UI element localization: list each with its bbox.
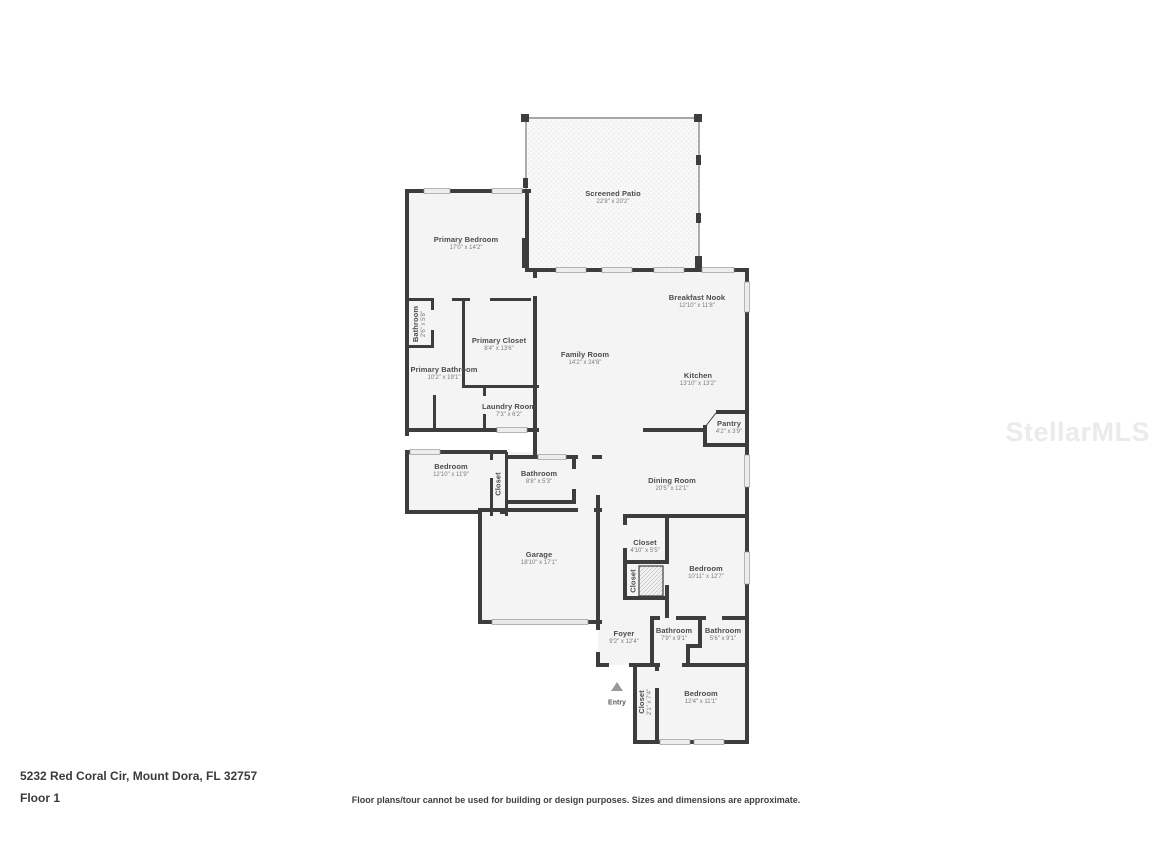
room-label-bedroom-mid: Bedroom 10'11" x 12'7" <box>688 564 724 580</box>
room-label-closet-hatched: Closet <box>629 569 638 593</box>
disclaimer-text: Floor plans/tour cannot be used for buil… <box>0 795 1152 805</box>
room-label-closet-bottom: Closet 2'1" x 7'4" <box>637 689 653 715</box>
entry-arrow-icon <box>611 682 623 691</box>
room-label-bathroom-b1: Bathroom 7'9" x 9'1" <box>656 626 692 642</box>
room-label-family-room: Family Room 14'2" x 24'8" <box>561 350 609 366</box>
floor-plan-drawing <box>0 0 1152 864</box>
floor-plan-page: Screened Patio 22'8" x 20'2" Primary Bed… <box>0 0 1152 864</box>
room-label-primary-closet: Primary Closet 8'4" x 13'6" <box>472 336 526 352</box>
room-label-primary-bedroom: Primary Bedroom 17'0" x 14'2" <box>434 235 498 251</box>
room-label-bathroom-small: Bathroom 2'6" x 5'8" <box>411 306 427 342</box>
room-label-pantry: Pantry 4'2" x 3'9" <box>716 419 742 435</box>
room-label-kitchen: Kitchen 13'10" x 13'2" <box>680 371 716 387</box>
room-label-dining-room: Dining Room 20'5" x 12'1" <box>648 476 696 492</box>
room-label-closet-hall: Closet 4'10" x 5'5" <box>630 538 660 554</box>
room-label-bedroom-left: Bedroom 12'10" x 11'9" <box>433 462 469 478</box>
room-label-bedroom-bottom: Bedroom 12'4" x 11'1" <box>684 689 718 705</box>
room-label-closet-bedroom-left: Closet <box>494 472 503 496</box>
room-label-foyer: Foyer 9'2" x 12'4" <box>609 629 639 645</box>
room-label-garage: Garage 18'10" x 17'1" <box>521 550 557 566</box>
room-label-bathroom-b2: Bathroom 5'6" x 9'1" <box>705 626 741 642</box>
room-label-laundry-room: Laundry Room 7'3" x 6'2" <box>482 402 536 418</box>
entry-label: Entry <box>608 700 626 707</box>
room-label-bathroom-mid: Bathroom 8'8" x 5'3" <box>521 469 557 485</box>
stellar-mls-watermark: StellarMLS <box>1005 417 1150 448</box>
room-label-screened-patio: Screened Patio 22'8" x 20'2" <box>585 189 641 205</box>
property-address: 5232 Red Coral Cir, Mount Dora, FL 32757 <box>20 769 257 783</box>
room-label-breakfast-nook: Breakfast Nook 12'10" x 11'8" <box>669 293 725 309</box>
hatched-closet-box <box>639 566 663 596</box>
room-label-primary-bathroom: Primary Bathroom 10'2" x 19'1" <box>410 365 477 381</box>
